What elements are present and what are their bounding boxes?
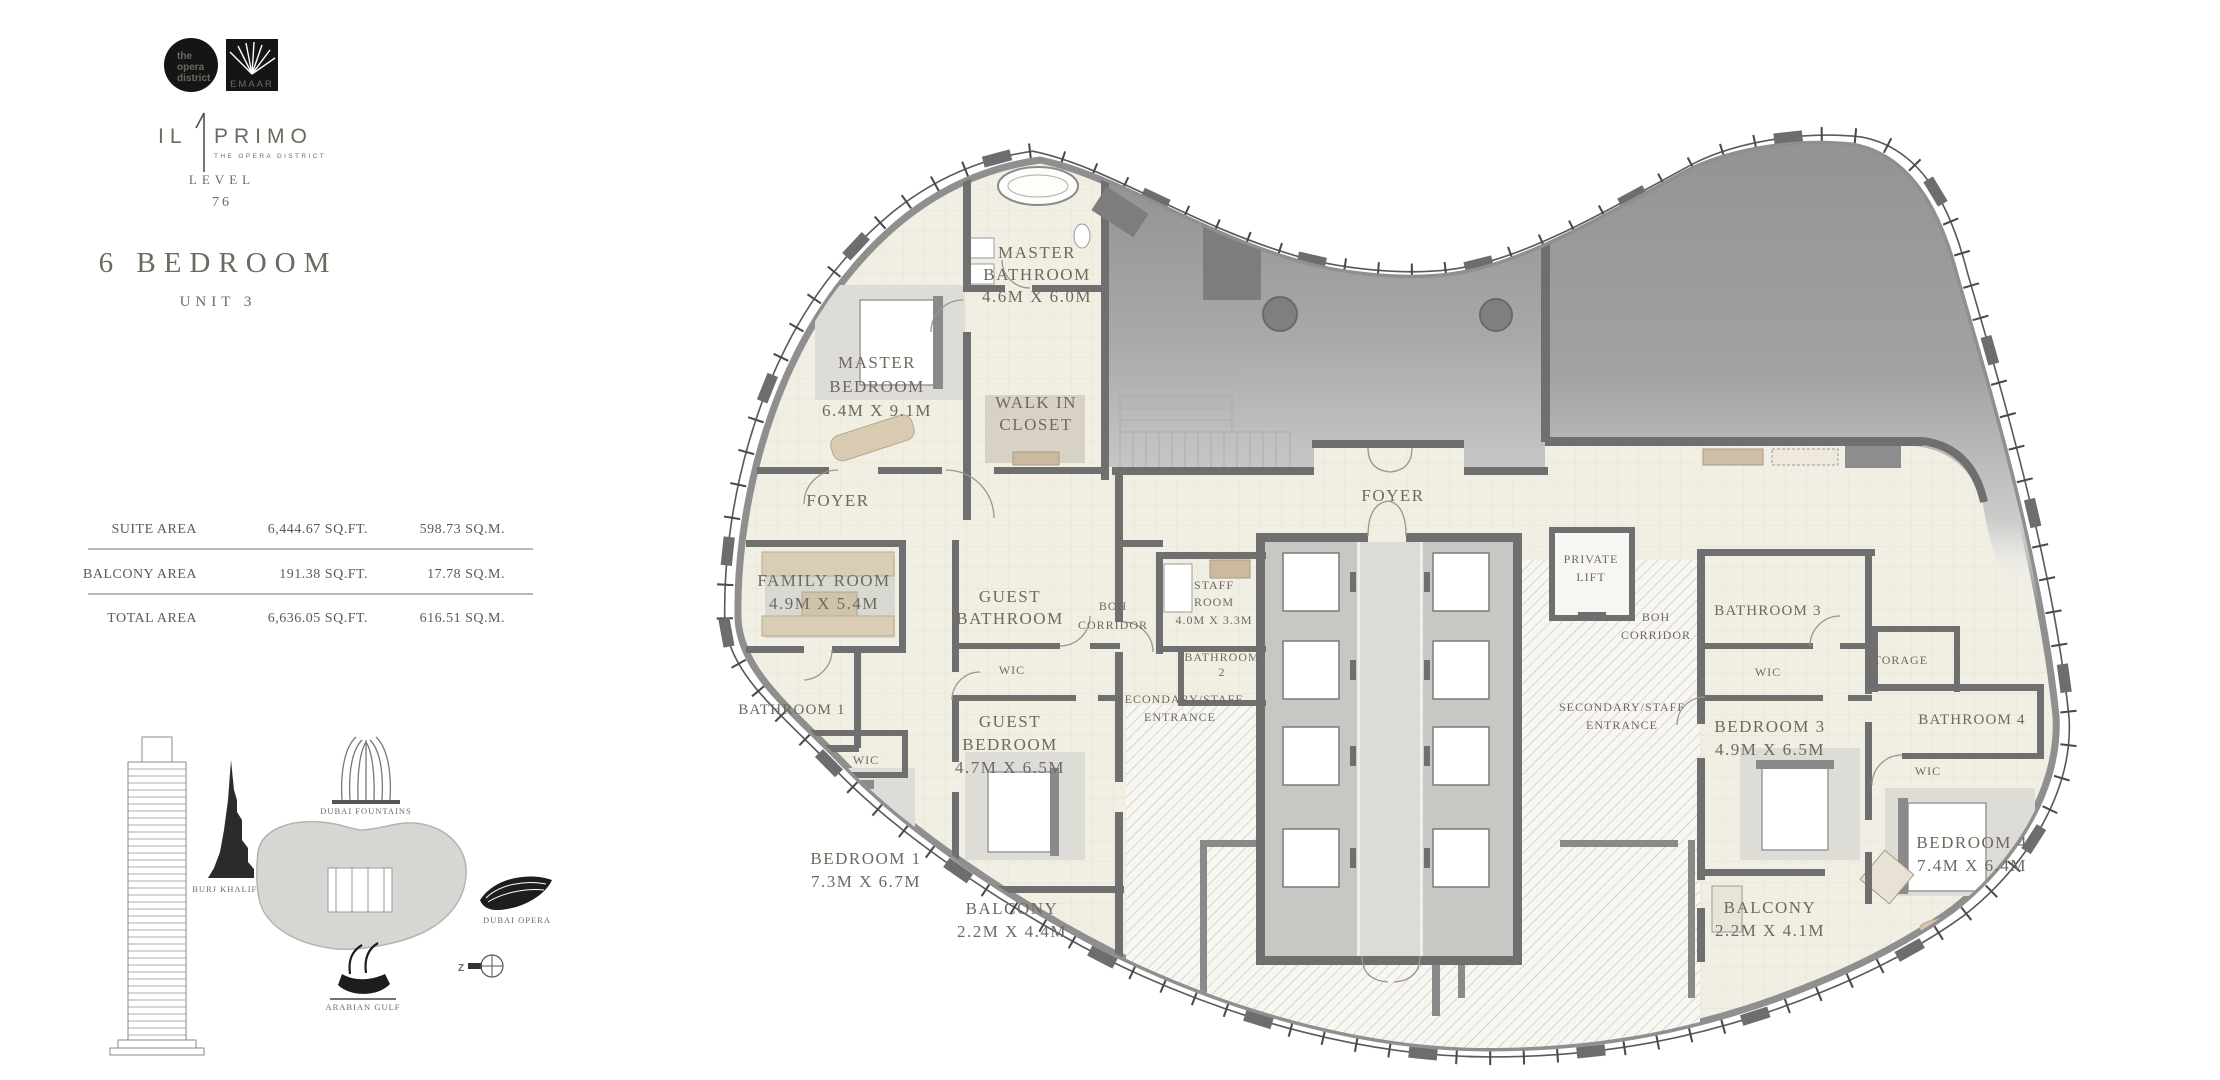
room-label-guest-bedroom: GUEST bbox=[979, 712, 1041, 731]
room-label-bathroom-2: 2 bbox=[1219, 665, 1226, 679]
area-row-sqft: 191.38 SQ.FT. bbox=[279, 567, 368, 582]
area-table: SUITE AREA 6,444.67 SQ.FT. 598.73 SQ.M. … bbox=[83, 522, 533, 626]
room-dims-master-bedroom: 6.4M X 9.1M bbox=[822, 401, 932, 420]
room-label-walk-in-closet: WALK IN bbox=[995, 393, 1077, 412]
structural-column bbox=[1480, 299, 1512, 331]
brand-subtitle: THE OPERA DISTRICT bbox=[214, 153, 326, 160]
burj-khalifa-label: BURJ KHALIFA bbox=[192, 884, 264, 894]
room-label-master-bedroom: BEDROOM bbox=[829, 377, 925, 396]
dubai-opera-label: DUBAI OPERA bbox=[483, 915, 551, 925]
bed-icon bbox=[860, 300, 935, 385]
area-row-label: BALCONY AREA bbox=[83, 567, 197, 582]
area-row-label: SUITE AREA bbox=[112, 522, 198, 537]
room-label-bathroom-4: BATHROOM 4 bbox=[1918, 712, 2025, 728]
bathtub-icon bbox=[998, 167, 1078, 205]
room-label-storage: STORAGE bbox=[1866, 653, 1928, 667]
dubai-opera-icon bbox=[480, 876, 552, 910]
il-primo-logo: IL PRIMO THE OPERA DISTRICT bbox=[158, 113, 326, 172]
room-label-secondary-staff-entrance-left: ENTRANCE bbox=[1144, 710, 1216, 724]
dubai-fountains-label: DUBAI FOUNTAINS bbox=[320, 806, 412, 816]
opera-district-logo-line2: opera bbox=[177, 62, 205, 73]
brand-one-glyph bbox=[196, 113, 204, 172]
foyer-notch bbox=[1314, 444, 1464, 472]
console-icon bbox=[1703, 449, 1763, 465]
opera-district-logo: the opera district bbox=[164, 38, 218, 92]
room-label-bedroom-4: BEDROOM 4 bbox=[1916, 833, 2027, 852]
room-label-boh-corridor-right: CORRIDOR bbox=[1621, 628, 1691, 642]
area-row-sqft: 6,636.05 SQ.FT. bbox=[268, 611, 368, 626]
opera-district-logo-line3: district bbox=[177, 73, 211, 84]
site-plan-key bbox=[257, 822, 466, 950]
floor-plan: MASTER BATHROOM 4.6M X 6.0M MASTER BEDRO… bbox=[717, 127, 2110, 1065]
emaar-logo-text: EMAAR bbox=[230, 79, 274, 90]
area-row-sqm: 616.51 SQ.M. bbox=[420, 611, 505, 626]
level-value: 76 bbox=[212, 195, 232, 210]
sidebar: the opera district EMAAR IL PRIMO THE OP… bbox=[83, 38, 552, 1055]
room-label-bathroom-1: BATHROOM 1 bbox=[738, 702, 845, 718]
bed-icon bbox=[1762, 768, 1828, 850]
room-label-bathroom-3: BATHROOM 3 bbox=[1714, 603, 1821, 619]
room-label-bedroom-1: BEDROOM 1 bbox=[810, 849, 921, 868]
area-row-sqm: 598.73 SQ.M. bbox=[420, 522, 505, 537]
arabian-gulf-icon bbox=[330, 943, 396, 999]
room-label-staff-room: STAFF bbox=[1194, 578, 1234, 592]
emaar-logo: EMAAR bbox=[226, 39, 278, 91]
room-label-master-bathroom: MASTER bbox=[998, 243, 1076, 262]
room-label-bedroom-3: BEDROOM 3 bbox=[1714, 717, 1825, 736]
arabian-gulf-label: ARABIAN GULF bbox=[325, 1002, 400, 1012]
opera-district-logo-line1: the bbox=[177, 51, 192, 62]
room-label-guest-bathroom: GUEST bbox=[979, 587, 1041, 606]
room-label-secondary-staff-entrance-left: SECONDARY/STAFF bbox=[1117, 692, 1243, 706]
rug bbox=[1772, 449, 1838, 465]
room-label-family-room: FAMILY ROOM bbox=[757, 571, 890, 590]
room-label-boh-corridor-left: BOH bbox=[1099, 599, 1127, 613]
shaded-area-top-center bbox=[1109, 150, 1545, 467]
room-label-bathroom-2: BATHROOM bbox=[1184, 650, 1259, 664]
room-label-walk-in-closet: CLOSET bbox=[999, 415, 1072, 434]
il-primo-tower-icon bbox=[110, 737, 204, 1055]
dubai-fountains-icon bbox=[332, 737, 400, 802]
room-label-private-lift: LIFT bbox=[1576, 570, 1605, 584]
room-label-wic-bedroom1: WIC bbox=[853, 753, 879, 767]
toilet-icon bbox=[1074, 224, 1090, 248]
room-label-private-lift: PRIVATE bbox=[1564, 552, 1619, 566]
room-label-master-bathroom: BATHROOM bbox=[983, 265, 1090, 284]
room-label-boh-corridor-right: BOH bbox=[1642, 610, 1670, 624]
room-dims-master-bathroom: 4.6M X 6.0M bbox=[982, 287, 1092, 306]
area-row-label: TOTAL AREA bbox=[107, 611, 197, 626]
burj-khalifa-icon bbox=[208, 760, 254, 878]
room-label-balcony-right: BALCONY bbox=[1724, 898, 1817, 917]
unit-number: UNIT 3 bbox=[180, 294, 257, 310]
area-row-sqft: 6,444.67 SQ.FT. bbox=[268, 522, 368, 537]
room-label-secondary-staff-entrance-right: SECONDARY/STAFF bbox=[1559, 700, 1685, 714]
room-dims-balcony-left: 2.2M X 4.4M bbox=[957, 922, 1067, 941]
compass-icon: Z bbox=[458, 955, 503, 977]
lift-core bbox=[1265, 542, 1513, 956]
bed-icon bbox=[1164, 564, 1192, 612]
room-label-boh-corridor-left: CORRIDOR bbox=[1078, 618, 1148, 632]
room-dims-staff-room: 4.0M X 3.3M bbox=[1175, 613, 1252, 627]
room-label-foyer-left: FOYER bbox=[806, 491, 869, 510]
room-dims-bedroom-4: 7.4M X 6.4M bbox=[1917, 856, 2027, 875]
brand-primo: PRIMO bbox=[214, 125, 313, 148]
room-dims-balcony-right: 2.2M X 4.1M bbox=[1715, 921, 1825, 940]
floorplan-page: the opera district EMAAR IL PRIMO THE OP… bbox=[0, 0, 2220, 1080]
bed-icon bbox=[988, 772, 1052, 852]
room-label-master-bedroom: MASTER bbox=[838, 353, 916, 372]
room-label-secondary-staff-entrance-right: ENTRANCE bbox=[1586, 718, 1658, 732]
room-label-wic-bedroom3: WIC bbox=[1755, 665, 1781, 679]
lift-lobby-floor bbox=[1360, 542, 1420, 956]
room-label-balcony-left: BALCONY bbox=[966, 899, 1059, 918]
room-dims-bedroom-3: 4.9M X 6.5M bbox=[1715, 740, 1825, 759]
structural-column bbox=[1263, 297, 1297, 331]
room-label-guest-bedroom: BEDROOM bbox=[962, 735, 1058, 754]
room-label-guest-bathroom: BATHROOM bbox=[956, 609, 1063, 628]
compass-label: Z bbox=[458, 963, 464, 974]
room-label-foyer-main: FOYER bbox=[1361, 486, 1424, 505]
room-label-staff-room: ROOM bbox=[1194, 595, 1234, 609]
room-label-wic-bedroom4: WIC bbox=[1915, 764, 1941, 778]
room-dims-bedroom-1: 7.3M X 6.7M bbox=[811, 872, 921, 891]
cabinet-icon bbox=[1845, 446, 1901, 468]
unit-type-heading: 6 BEDROOM bbox=[99, 247, 338, 279]
room-dims-family-room: 4.9M X 5.4M bbox=[769, 594, 879, 613]
area-row-sqm: 17.78 SQ.M. bbox=[427, 567, 505, 582]
brand-il: IL bbox=[158, 125, 188, 148]
level-label: LEVEL bbox=[189, 172, 255, 187]
room-dims-guest-bedroom: 4.7M X 6.5M bbox=[955, 758, 1065, 777]
location-key: BURJ KHALIFA DUBAI FOUNTAINS bbox=[110, 737, 552, 1055]
room-label-wic-guest: WIC bbox=[999, 663, 1025, 677]
